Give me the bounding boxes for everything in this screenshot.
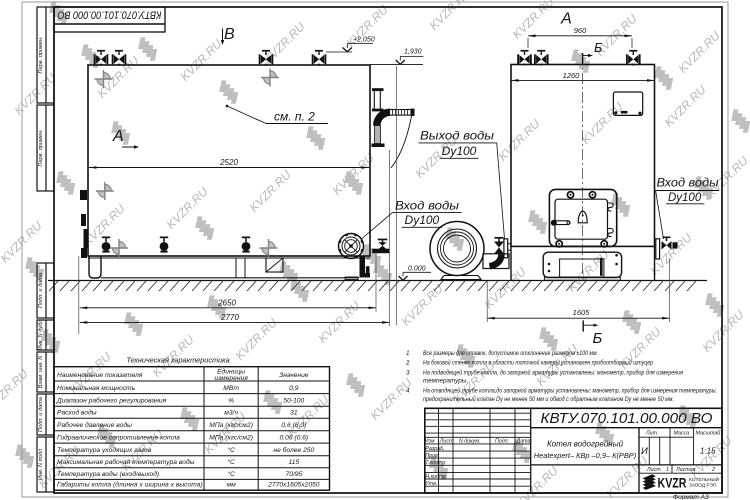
- svg-text:Диапазон рабочего регулировани: Диапазон рабочего регулирования: [56, 397, 167, 405]
- svg-text:Листов: Листов: [675, 467, 696, 473]
- svg-text:МПа (кгс/см2): МПа (кгс/см2): [209, 435, 253, 442]
- svg-text:А: А: [560, 11, 572, 28]
- svg-text:м3/ч: м3/ч: [224, 410, 238, 417]
- svg-text:31: 31: [290, 410, 298, 417]
- svg-text:Вход воды: Вход воды: [395, 199, 459, 213]
- svg-text:Dy100: Dy100: [405, 213, 440, 227]
- svg-text:Утв.: Утв.: [425, 481, 437, 487]
- svg-text:2: 2: [711, 467, 715, 473]
- svg-text:1:15: 1:15: [700, 447, 716, 456]
- svg-text:N докум.: N докум.: [459, 439, 480, 445]
- svg-text:Подп. и дата: Подп. и дата: [38, 397, 44, 432]
- svg-text:Перв. примен.: Перв. примен.: [38, 129, 44, 166]
- svg-text:1260: 1260: [563, 71, 581, 80]
- svg-text:Номинальная мощность: Номинальная мощность: [57, 385, 136, 392]
- svg-text:Перв. примен.: Перв. примен.: [38, 36, 44, 73]
- svg-text:И: И: [641, 446, 648, 457]
- svg-text:960: 960: [574, 26, 587, 35]
- svg-text:А: А: [112, 128, 124, 145]
- svg-text:Heatexpert– КВр –0,9– К(РВР): Heatexpert– КВр –0,9– К(РВР): [534, 451, 637, 460]
- svg-text:На отводящей трубе котла,до за: На отводящей трубе котла,до запорной арм…: [423, 387, 717, 395]
- svg-text:Температура уходящих газов: Температура уходящих газов: [57, 446, 152, 454]
- svg-text:Лист: Лист: [439, 439, 454, 445]
- svg-text:На боковой стенке котла в обла: На боковой стенке котла в области топочн…: [423, 359, 653, 367]
- svg-text:Все размеры для справок, допус: Все размеры для справок, допустимое откл…: [423, 349, 598, 357]
- svg-text:На подводящей трубе котла, д: На подводящей трубе котла, до запорной а…: [423, 369, 684, 377]
- svg-text:Максимальная рабочая температу: Максимальная рабочая температура воды: [57, 458, 195, 466]
- svg-text:°С: °С: [227, 458, 235, 466]
- svg-text:2: 2: [405, 360, 410, 367]
- svg-text:Инв. N подл: Инв. N подл: [38, 448, 44, 480]
- svg-text:0,9: 0,9: [289, 385, 299, 392]
- svg-text:Лит.: Лит.: [645, 431, 658, 437]
- svg-text:0.000: 0.000: [408, 265, 426, 272]
- svg-text:Б: Б: [593, 330, 603, 347]
- svg-text:°С: °С: [227, 470, 235, 478]
- svg-text:мм: мм: [227, 482, 237, 489]
- svg-text:Котел водогрейный: Котел водогрейный: [547, 440, 624, 449]
- svg-text:50-100: 50-100: [283, 398, 304, 405]
- svg-text:Т.контр: Т.контр: [425, 460, 445, 466]
- svg-text:Dy100: Dy100: [442, 144, 477, 158]
- svg-text:измерения: измерения: [214, 375, 248, 382]
- svg-text:Масштаб: Масштаб: [696, 431, 722, 437]
- svg-text:1: 1: [406, 350, 410, 357]
- svg-text:Б: Б: [594, 40, 603, 55]
- svg-text:+2,050: +2,050: [353, 37, 375, 44]
- svg-text:В: В: [224, 26, 235, 43]
- svg-text:Рабочее давление воды: Рабочее давление воды: [57, 421, 132, 429]
- svg-text:Габариты котла (длинна х ширин: Габариты котла (длинна х ширина х высота…: [57, 481, 203, 489]
- svg-text:не более 250: не более 250: [273, 446, 314, 454]
- svg-text:Выход воды: Выход воды: [420, 129, 494, 143]
- svg-text:70/95: 70/95: [285, 471, 302, 478]
- svg-text:Подп. и дата: Подп. и дата: [38, 273, 44, 308]
- svg-text:КВТУ.070.101.00.000 ВО: КВТУ.070.101.00.000 ВО: [57, 9, 161, 21]
- svg-text:температуры.: температуры.: [423, 378, 468, 385]
- svg-text:Гидравлическое сопротивление к: Гидравлическое сопротивление котла: [57, 434, 180, 442]
- svg-text:предохранительный клапан Dy не: предохранительный клапан Dy не менее 50 …: [423, 395, 674, 403]
- svg-text:КВТУ.070.101.00.000 ВО: КВТУ.070.101.00.000 ВО: [541, 410, 713, 427]
- svg-text:2650: 2650: [217, 298, 236, 307]
- svg-text:МПа (кгс/см2): МПа (кгс/см2): [209, 422, 253, 429]
- svg-text:Вход воды: Вход воды: [657, 178, 720, 190]
- svg-text:см. п. 2: см. п. 2: [274, 110, 315, 124]
- svg-text:ЗАВОД РЭП: ЗАВОД РЭП: [689, 483, 717, 489]
- svg-text:0,06 (0,6): 0,06 (0,6): [280, 435, 309, 442]
- svg-text:2770х1605х2050: 2770х1605х2050: [267, 482, 320, 489]
- svg-text:Взам. инв. N: Взам. инв. N: [38, 355, 44, 389]
- svg-text:Лист: Лист: [646, 467, 661, 473]
- svg-text:Пров.: Пров.: [425, 453, 439, 459]
- svg-text:%: %: [228, 398, 234, 405]
- svg-text:2770: 2770: [220, 313, 239, 322]
- svg-text:Н.контр: Н.контр: [425, 474, 446, 480]
- svg-text:Масса: Масса: [674, 431, 690, 437]
- svg-text:Разраб.: Разраб.: [425, 446, 444, 452]
- svg-text:3: 3: [406, 370, 410, 377]
- svg-text:°С: °С: [227, 446, 235, 454]
- svg-text:Dy100: Dy100: [668, 192, 702, 204]
- svg-text:1605: 1605: [573, 308, 591, 317]
- svg-text:4: 4: [406, 388, 410, 395]
- svg-text:Расход воды: Расход воды: [57, 409, 97, 417]
- svg-text:115: 115: [289, 459, 300, 466]
- svg-text:Формат А3: Формат А3: [673, 494, 709, 500]
- svg-text:Температура воды (вход/выход): Температура воды (вход/выход): [57, 470, 159, 478]
- svg-text:Инв. N дубл: Инв. N дубл: [38, 319, 44, 351]
- svg-text:Дата: Дата: [516, 439, 531, 445]
- svg-text:Изм: Изм: [425, 439, 435, 445]
- svg-text:0,6 (6,0): 0,6 (6,0): [281, 422, 306, 429]
- svg-text:Техническая характеристика: Техническая характеристика: [126, 356, 229, 365]
- svg-text:2520: 2520: [219, 158, 238, 167]
- svg-text:МВт: МВт: [223, 385, 239, 392]
- svg-text:Значение: Значение: [279, 372, 309, 379]
- svg-text:KVZR: KVZR: [658, 475, 687, 491]
- svg-text:1: 1: [666, 467, 669, 473]
- svg-text:Подп.: Подп.: [495, 439, 509, 445]
- svg-text:Наименование показателя: Наименование показателя: [57, 372, 143, 379]
- svg-text:1,930: 1,930: [404, 49, 422, 56]
